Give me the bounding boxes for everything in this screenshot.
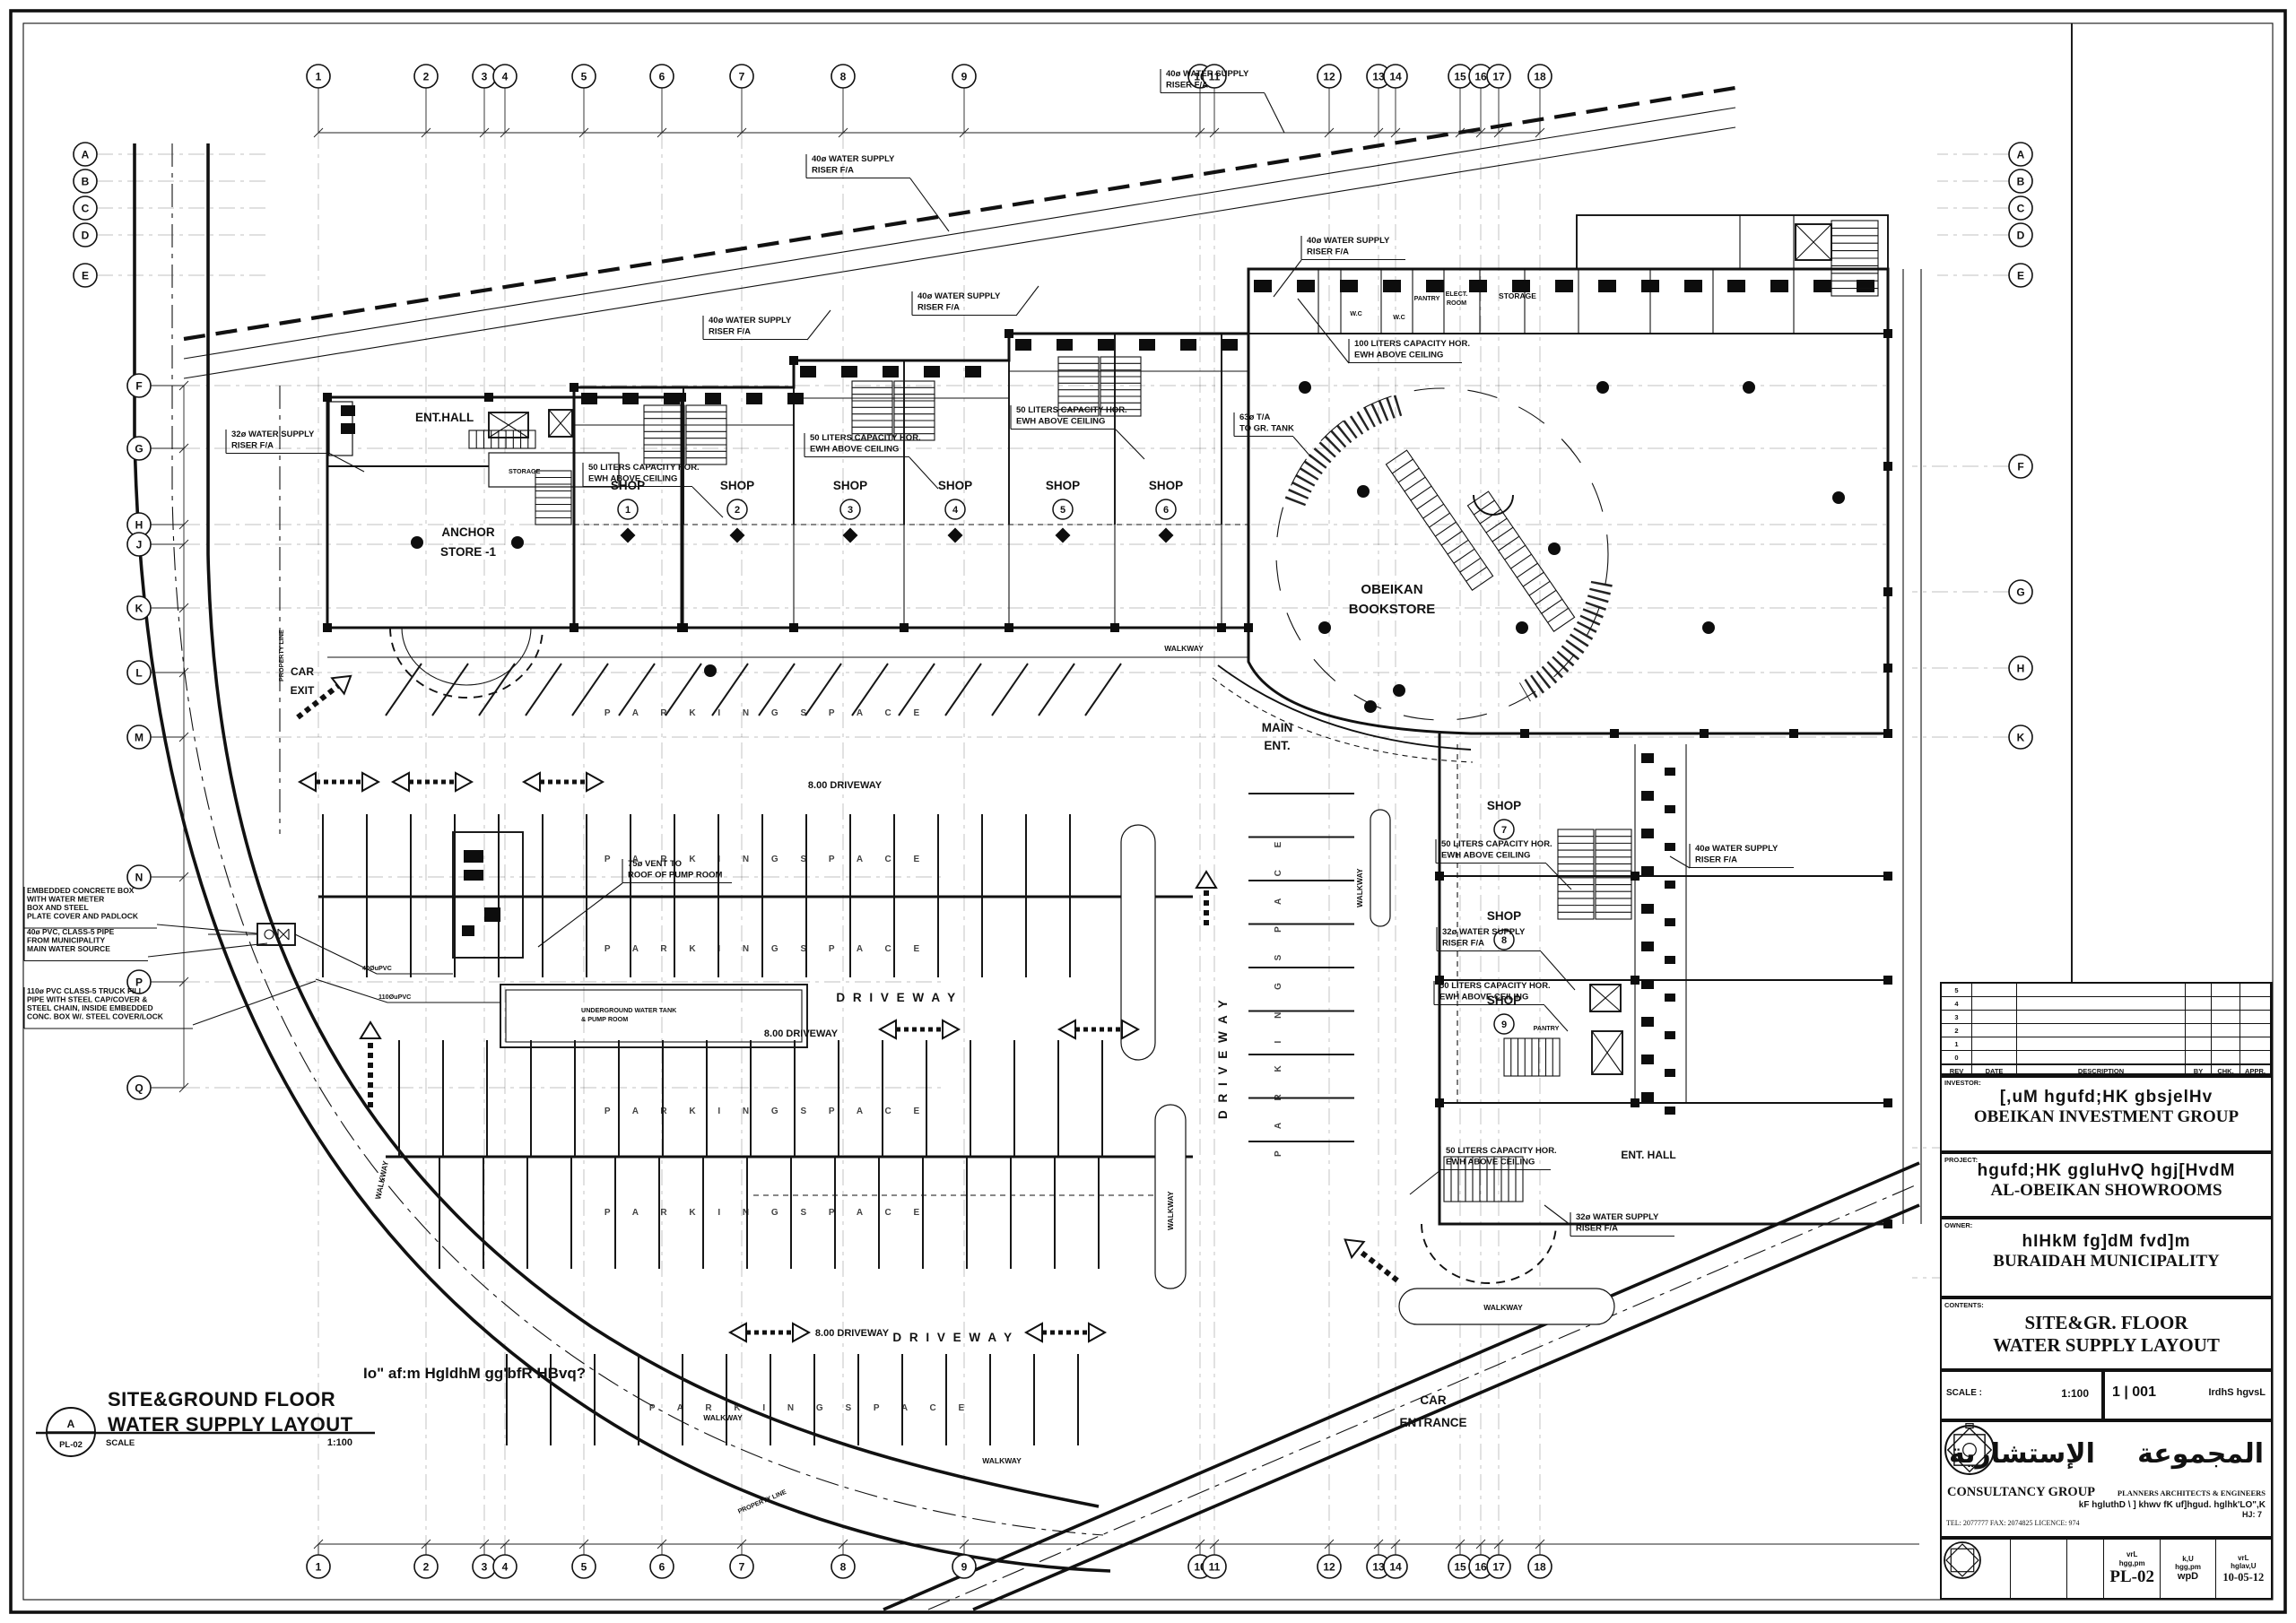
grid-bubble-label: 1 [316,1561,322,1574]
grid-bubble-label: 16 [1474,71,1487,83]
upvc110-label: 110ØuPVC [378,993,411,1001]
grid-bubble-label: 3 [482,1561,488,1574]
svg-text:50 LITERS CAPACITY HOR.: 50 LITERS CAPACITY HOR. [1016,405,1127,415]
svg-text:32ø WATER SUPPLY: 32ø WATER SUPPLY [1576,1212,1659,1222]
view-scale-label: SCALE [106,1438,135,1448]
grid-bubble-label: 13 [1372,1561,1385,1574]
room-label-anchor-2: STORE -1 [440,545,497,559]
consultancy-name-row: CONSULTANCY GROUP PLANNERS ARCHITECTS & … [1942,1485,2271,1500]
driveway-8m-label: 8.00 DRIVEWAY [764,1028,839,1039]
room-label-bookstore-1: OBEIKAN [1361,582,1422,597]
rev-cell: 5 [1942,984,1972,997]
walkway-label: WALKWAY [982,1456,1022,1465]
rev-cell: 4 [1942,997,1972,1011]
svg-text:PIPE WITH STEEL CAP/COVER &: PIPE WITH STEEL CAP/COVER & [27,995,147,1004]
rev-cell [2186,1051,2212,1064]
grid-bubble-label: 2 [423,71,430,83]
rev-cell [2186,984,2212,997]
grid-bubble-label: 15 [1454,71,1466,83]
shop-label: SHOP [1149,479,1183,492]
grid-bubble-label: 6 [659,1561,665,1574]
project-label: PROJECT: [1944,1156,1978,1164]
svg-text:EMBEDDED CONCRETE BOX: EMBEDDED CONCRETE BOX [27,886,135,895]
strip-label: k,U [2182,1555,2193,1563]
svg-text:50 LITERS CAPACITY HOR.: 50 LITERS CAPACITY HOR. [1446,1146,1557,1156]
revision-table: 543210REVDATEDESCRIPTIONBYCHK.APPR. [1940,982,2273,1075]
grid-bubble-label: A [2017,149,2025,161]
grid-bubble-label: 11 [1209,1561,1221,1574]
shop-number: 3 [848,505,853,516]
contents-label: CONTENTS: [1944,1301,1984,1309]
shop-label: SHOP [1487,799,1521,812]
rev-cell [2212,984,2240,997]
svg-text:RISER F/A: RISER F/A [1576,1224,1618,1234]
room-label-pantry: PANTRY [1414,294,1440,302]
title-block: 543210REVDATEDESCRIPTIONBYCHK.APPR. INVE… [1940,982,2273,1600]
rev-cell [2186,1011,2212,1024]
project-date: 10-05-12 [2222,1571,2264,1584]
shop-number: 4 [952,505,959,516]
svg-text:EWH ABOVE CEILING: EWH ABOVE CEILING [1439,993,1528,1002]
svg-text:110ø PVC CLASS-5 TRUCK FILL: 110ø PVC CLASS-5 TRUCK FILL [27,986,143,995]
two-way-arrow [300,773,378,791]
svg-text:50 LITERS CAPACITY HOR.: 50 LITERS CAPACITY HOR. [1441,839,1552,849]
rev-cell [2017,984,2186,997]
contents-line1: SITE&GR. FLOOR [1942,1312,2271,1334]
grid-bubble-label: H [2017,663,2025,675]
rev-cell [2212,1051,2240,1064]
grid-bubble-label: 17 [1492,71,1505,83]
rev-cell [2186,1024,2212,1037]
svg-text:50 LITERS CAPACITY HOR.: 50 LITERS CAPACITY HOR. [1439,981,1551,991]
note-label: 50 LITERS CAPACITY HOR.EWH ABOVE CEILING [1436,839,1571,890]
sheet-type: wpD [2178,1571,2198,1583]
parking-space-label: P A R K I N G S P A C E [604,944,929,954]
grid-bubble-label: 1 [316,71,322,83]
grid-bubble-label: 15 [1454,1561,1466,1574]
shop-number: 1 [625,505,631,516]
grid-bubble-label: 3 [482,71,488,83]
note-label: 50 LITERS CAPACITY HOR.EWH ABOVE CEILING [583,463,723,517]
shop-number: 2 [735,505,740,516]
svg-text:RISER F/A: RISER F/A [1307,247,1349,257]
view-scale-value: 1:100 [327,1437,352,1448]
grid-bubble-label: 18 [1534,71,1546,83]
grid-bubble-label: J [136,539,143,551]
car-entrance-label-2: ENTRANCE [1399,1416,1466,1429]
shop-number: 9 [1501,1020,1507,1030]
svg-text:ROOF OF PUMP ROOM: ROOF OF PUMP ROOM [628,871,722,881]
note-label: 75ø VENT TOROOF OF PUMP ROOM [538,859,732,947]
room-label-wc: W.C [1350,309,1362,317]
owner-box: OWNER: hIHkM fg]dM fvd]m BURAIDAH MUNICI… [1940,1218,2273,1298]
title-strip: vrL hgg,pm PL-02 k,U hgg,pm wpD vrL hgla… [1940,1538,2273,1600]
driveway-label: D R I V E W A Y [892,1331,1013,1344]
note-label: 40ø WATER SUPPLYRISER F/A [703,310,831,340]
rev-cell [1972,1051,2017,1064]
grid-bubble-label: 12 [1323,1561,1335,1574]
strip-empty-cell [2067,1540,2104,1598]
annotation-notes: 50 LITERS CAPACITY HOR.EWH ABOVE CEILING… [24,69,1794,1237]
svg-text:EWH ABOVE CEILING: EWH ABOVE CEILING [1354,351,1443,360]
grid-bubble-label: 5 [581,71,587,83]
svg-text:EWH ABOVE CEILING: EWH ABOVE CEILING [588,474,677,484]
view-ref-letter: A [67,1418,75,1430]
room-label-bookstore-2: BOOKSTORE [1349,602,1435,617]
shop-number: 7 [1501,825,1507,836]
grid-bubble-label: D [2017,230,2025,242]
grid-bubble-label: E [2017,270,2024,282]
grid-bubble-label: D [82,230,90,242]
scale-label: SCALE : [1946,1388,1982,1398]
note-label: 63ø T/ATO GR. TANK [1234,412,1311,457]
grid-bubble-label: 7 [739,1561,745,1574]
grid-bubble-label: F [135,380,142,393]
consultancy-emblem [1942,1422,1997,1478]
svg-text:PLATE COVER AND PADLOCK: PLATE COVER AND PADLOCK [27,912,139,921]
upvc40-label: 40ØuPVC [362,964,392,972]
svg-text:BOX AND STEEL: BOX AND STEEL [27,903,89,912]
driveway-label: D R I V E W A Y [836,991,957,1004]
parking-space-label: P A R K I N G S P A C E [604,1107,929,1116]
strip-sheet-type-cell: k,U hgg,pm wpD [2161,1540,2215,1598]
grid-bubble-label: L [135,667,142,680]
rev-cell: 3 [1942,1011,1972,1024]
shop-label: SHOP [1046,479,1080,492]
two-way-arrow [393,773,472,791]
view-ref-number: PL-02 [59,1440,83,1450]
driveway-8m-label: 8.00 DRIVEWAY [808,780,883,791]
strip-emblem [1942,1540,1983,1581]
svg-text:FROM MUNICIPALITY: FROM MUNICIPALITY [27,936,106,945]
grid-bubble-label: G [135,443,143,456]
shop-label: SHOP [833,479,867,492]
car-exit-label-1: CAR [291,665,314,678]
parking-space-label-vertical: P A R K I N G S P A C E [1274,832,1283,1157]
note-label: 50 LITERS CAPACITY HOR.EWH ABOVE CEILING [1410,1146,1557,1194]
drawing-sheet: SHOP1SHOP2SHOP3SHOP4SHOP5SHOP6SHOP7SHOP8… [0,0,2296,1623]
note-label: 32ø WATER SUPPLYRISER F/A [1544,1205,1674,1237]
svg-text:40ø WATER SUPPLY: 40ø WATER SUPPLY [1307,236,1390,246]
consultancy-box: الإستشارية المجموعة CONSULTANCY GROUP PL… [1940,1420,2273,1538]
grid-bubble-label: Q [135,1082,143,1095]
owner-english: BURAIDAH MUNICIPALITY [1942,1252,2271,1271]
rev-cell [1972,1037,2017,1051]
grid-bubble-label: G [2016,586,2024,599]
strip-label: vrL [2126,1550,2137,1558]
grid-bubble-label: 8 [840,71,847,83]
grid-bubble-label: 14 [1389,71,1402,83]
rev-cell [1972,984,2017,997]
svg-text:STEEL CHAIN, INSIDE EMBEDDED: STEEL CHAIN, INSIDE EMBEDDED [27,1003,153,1012]
room-label-elect-1: ELECT. [1446,290,1468,298]
parking-space-label: P A R K I N G S P A C E [604,855,929,864]
room-label-storage2: STORAGE [1499,291,1536,300]
scale-row: SCALE : 1:100 1 | 001 IrdhS hgvsL [1940,1370,2273,1420]
car-entrance-label-1: CAR [1420,1393,1446,1407]
room-label-pantry2: PANTRY [1534,1024,1560,1032]
shop-label: SHOP [1487,909,1521,923]
walkway-label: WALKWAY [1483,1303,1523,1312]
consultancy-name: CONSULTANCY GROUP [1947,1485,2095,1500]
strip-logo-cell [1942,1540,2011,1598]
shop-label: SHOP [720,479,754,492]
owner-label: OWNER: [1944,1221,1972,1229]
grid-bubble-label: M [135,732,143,744]
two-way-arrow [880,1020,959,1038]
consultancy-arabic-line: kF hgluthD \ ] khwv fK uf]hgud. hglhk'LO… [1942,1500,2271,1510]
rev-cell [2186,997,2212,1011]
rev-cell [2240,984,2271,997]
direction-arrow [1339,1232,1404,1289]
note-label: 40ø WATER SUPPLYRISER F/A [1161,69,1284,133]
room-label-anchor-1: ANCHOR [441,525,494,539]
consultancy-arabic-line2: HJ: 7 [1942,1510,2271,1519]
grid-bubble-label: E [82,270,89,282]
shop-number: 6 [1163,505,1169,516]
svg-text:40ø PVC, CLASS-5 PIPE: 40ø PVC, CLASS-5 PIPE [27,927,115,936]
walkway-label: WALKWAY [1164,644,1204,653]
note-label: 110ø PVC CLASS-5 TRUCK FILLPIPE WITH STE… [24,981,316,1028]
grid-bubble-label: 12 [1323,71,1335,83]
grid-bubble-label: 7 [739,71,745,83]
consultancy-contact: TEL: 2077777 FAX: 2074825 LICENCE: 974 [1942,1519,2271,1527]
svg-text:RISER F/A: RISER F/A [1166,81,1208,91]
svg-text:TO GR. TANK: TO GR. TANK [1239,424,1294,434]
project-box: PROJECT: hgufd;HK ggluHvQ hgj[HvdM AL-OB… [1940,1152,2273,1218]
rev-cell [2212,1037,2240,1051]
sheet-cell: 1 | 001 IrdhS hgvsL [2103,1370,2273,1420]
scale-cell: SCALE : 1:100 [1940,1370,2103,1420]
svg-text:32ø WATER SUPPLY: 32ø WATER SUPPLY [1442,927,1526,937]
svg-text:RISER F/A: RISER F/A [1442,939,1484,949]
grid-bubble-label: H [135,519,143,532]
note-label: 50 LITERS CAPACITY HOR.EWH ABOVE CEILING [1011,405,1144,459]
rev-cell [1972,997,2017,1011]
svg-text:RISER F/A: RISER F/A [709,327,751,337]
note-label: 40ø WATER SUPPLYRISER F/A [912,286,1039,316]
svg-text:32ø WATER SUPPLY: 32ø WATER SUPPLY [231,430,315,439]
rev-cell [1972,1011,2017,1024]
shop-number: 5 [1060,505,1065,516]
walkway-label: WALKWAY [1166,1191,1175,1230]
grid-bubble-label: 18 [1534,1561,1546,1574]
driveway-8m-label: 8.00 DRIVEWAY [815,1328,890,1339]
svg-text:50 LITERS CAPACITY HOR.: 50 LITERS CAPACITY HOR. [810,433,921,443]
rev-cell [1972,1024,2017,1037]
rev-cell: 1 [1942,1037,1972,1051]
main-ent-label-2: ENT. [1264,739,1290,752]
consultancy-subtitle: PLANNERS ARCHITECTS & ENGINEERS [2118,1488,2266,1497]
drawing-number: PL-02 [2109,1567,2154,1587]
investor-box: INVESTOR: [,uM hgufd;HK gbsjelHv OBEIKAN… [1940,1075,2273,1152]
investor-label: INVESTOR: [1944,1079,1981,1087]
rev-cell [2212,997,2240,1011]
grid-bubble-label: K [135,603,143,615]
parking-space-label: P A R K I N G S P A C E [604,708,929,718]
grid-bubble-label: 9 [961,71,968,83]
rev-cell: 2 [1942,1024,1972,1037]
grid-bubble-label: F [2017,461,2023,473]
walkway-label: WALKWAY [1355,868,1364,907]
note-label: 40ø PVC, CLASS-5 PIPEFROM MUNICIPALITYMA… [24,927,267,961]
svg-text:40ø WATER SUPPLY: 40ø WATER SUPPLY [1166,69,1249,79]
grid-bubble-label: 4 [502,71,509,83]
strip-date-cell: vrL hglav,U 10-05-12 [2216,1540,2271,1598]
two-way-arrow [730,1324,809,1341]
direction-arrow [1196,872,1216,925]
dimension-lines [179,128,1919,1549]
rev-cell [2017,1051,2186,1064]
owner-arabic: hIHkM fg]dM fvd]m [1942,1232,2271,1252]
grid-bubble-label: N [135,872,143,884]
note-label: 50 LITERS CAPACITY HOR.EWH ABOVE CEILING [804,433,938,489]
plan-symbols: SHOP1SHOP2SHOP3SHOP4SHOP5SHOP6SHOP7SHOP8… [323,221,1892,1228]
rev-cell [2017,1024,2186,1037]
rev-cell [2212,1011,2240,1024]
rev-cell [2240,1037,2271,1051]
project-arabic: hgufd;HK ggluHvQ hgj[HvdM [1942,1161,2271,1181]
svg-text:CONC. BOX W/. STEEL COVER/LOCK: CONC. BOX W/. STEEL COVER/LOCK [27,1012,164,1021]
room-label-ent-hall2: ENT. HALL [1621,1149,1675,1161]
two-way-arrow [1059,1020,1138,1038]
rev-cell [2186,1037,2212,1051]
walkway-label: WALKWAY [373,1159,390,1200]
grid-bubble-label: C [2017,203,2025,215]
rev-cell: 0 [1942,1051,1972,1064]
svg-text:MAIN WATER SOURCE: MAIN WATER SOURCE [27,944,110,953]
grid-bubble-label: 6 [659,71,665,83]
grid-bubble-label: 9 [961,1561,968,1574]
svg-text:63ø T/A: 63ø T/A [1239,412,1270,422]
parking-space-label: P A R K I N G S P A C E [604,1208,929,1218]
svg-text:EWH ABOVE CEILING: EWH ABOVE CEILING [1446,1158,1535,1167]
grid-bubble-label: K [2017,732,2025,744]
grid-bubble-label: 8 [840,1561,847,1574]
arabic-name-right: المجموعة [2137,1438,2264,1470]
sheet-arabic: IrdhS hgvsL [2208,1387,2266,1398]
rev-cell [2240,1024,2271,1037]
project-english: AL-OBEIKAN SHOWROOMS [1942,1181,2271,1201]
svg-text:RISER F/A: RISER F/A [918,303,960,313]
rev-cell [2017,997,2186,1011]
grid-bubble-label: 16 [1474,1561,1487,1574]
svg-text:EWH ABOVE CEILING: EWH ABOVE CEILING [1016,417,1105,427]
investor-english: OBEIKAN INVESTMENT GROUP [1942,1107,2271,1127]
consultancy-arabic-name: الإستشارية المجموعة [1942,1422,2271,1485]
svg-text:EWH ABOVE CEILING: EWH ABOVE CEILING [810,445,899,455]
scale-value: 1:100 [2061,1387,2089,1400]
svg-text:RISER F/A: RISER F/A [231,441,274,451]
grid-bubble-label: 13 [1372,71,1385,83]
rev-cell [2017,1011,2186,1024]
grid-bubble-label: 5 [581,1561,587,1574]
contents-line2: WATER SUPPLY LAYOUT [1942,1334,2271,1357]
strip-drawing-no-cell: vrL hgg,pm PL-02 [2104,1540,2161,1598]
tank-label-2: & PUMP ROOM [581,1015,628,1023]
room-label-ent-hall: ENT.HALL [415,411,474,424]
rev-cell [2212,1024,2240,1037]
svg-text:40ø WATER SUPPLY: 40ø WATER SUPPLY [918,291,1001,301]
grid-bubble-label: 4 [502,1561,509,1574]
sheet-number: 1 | 001 [2112,1384,2156,1401]
main-ent-label-1: MAIN [1262,721,1293,734]
grid-bubble-label: 2 [423,1561,430,1574]
tank-label-1: UNDERGROUND WATER TANK [581,1006,677,1014]
parking-space-label: P A R K I N G S P A C E [649,1403,974,1413]
room-label-wc2: W.C [1393,313,1405,321]
strip-label: hglav,U [2231,1562,2256,1570]
two-way-arrow [1026,1324,1105,1341]
svg-text:RISER F/A: RISER F/A [812,166,854,176]
direction-arrow [361,1022,380,1107]
grid-bubble-label: 14 [1389,1561,1402,1574]
rev-cell [2240,997,2271,1011]
rev-cell [2017,1037,2186,1051]
view-title-line1: SITE&GROUND FLOOR [108,1388,335,1410]
svg-text:EWH ABOVE CEILING: EWH ABOVE CEILING [1441,851,1530,861]
two-way-arrow [524,773,603,791]
svg-text:40ø WATER SUPPLY: 40ø WATER SUPPLY [1695,844,1779,854]
strip-empty-cell [2011,1540,2067,1598]
rev-cell [2240,1051,2271,1064]
driveway-label-vertical: D R I V E W A Y [1216,998,1230,1119]
rev-cell [2240,1011,2271,1024]
grid-bubble-label: B [2017,176,2025,188]
svg-text:40ø WATER SUPPLY: 40ø WATER SUPPLY [812,154,895,164]
shop-label: SHOP [938,479,972,492]
grid-bubble-label: C [82,203,90,215]
investor-arabic: [,uM hgufd;HK gbsjelHv [1942,1088,2271,1107]
direction-arrows [291,668,1404,1341]
strip-label: hgg,pm [2119,1559,2145,1567]
arabic-note: Io" af:m HgldhM gg'bfR HBvq? [363,1365,586,1382]
walkway-label: WALKWAY [703,1413,743,1422]
svg-text:50 LITERS CAPACITY HOR.: 50 LITERS CAPACITY HOR. [588,463,700,473]
svg-text:WITH WATER METER: WITH WATER METER [27,895,104,904]
note-label: 40ø WATER SUPPLYRISER F/A [1670,844,1794,868]
room-label-elect-2: ROOM [1447,299,1466,307]
grid-bubble-label: 17 [1492,1561,1505,1574]
property-line-label: PROPERTY LINE [277,629,285,681]
svg-text:40ø WATER SUPPLY: 40ø WATER SUPPLY [709,316,792,325]
strip-label: vrL [2238,1554,2248,1562]
svg-text:RISER F/A: RISER F/A [1695,855,1737,865]
contents-box: CONTENTS: SITE&GR. FLOOR WATER SUPPLY LA… [1940,1298,2273,1370]
strip-label: hgg,pm [2175,1563,2201,1571]
svg-text:100 LITERS CAPACITY HOR.: 100 LITERS CAPACITY HOR. [1354,339,1470,349]
grid-bubble-label: A [82,149,90,161]
room-label-storage: STORAGE [509,467,541,475]
grid-bubble-label: B [82,176,90,188]
car-exit-label-2: EXIT [291,684,315,697]
